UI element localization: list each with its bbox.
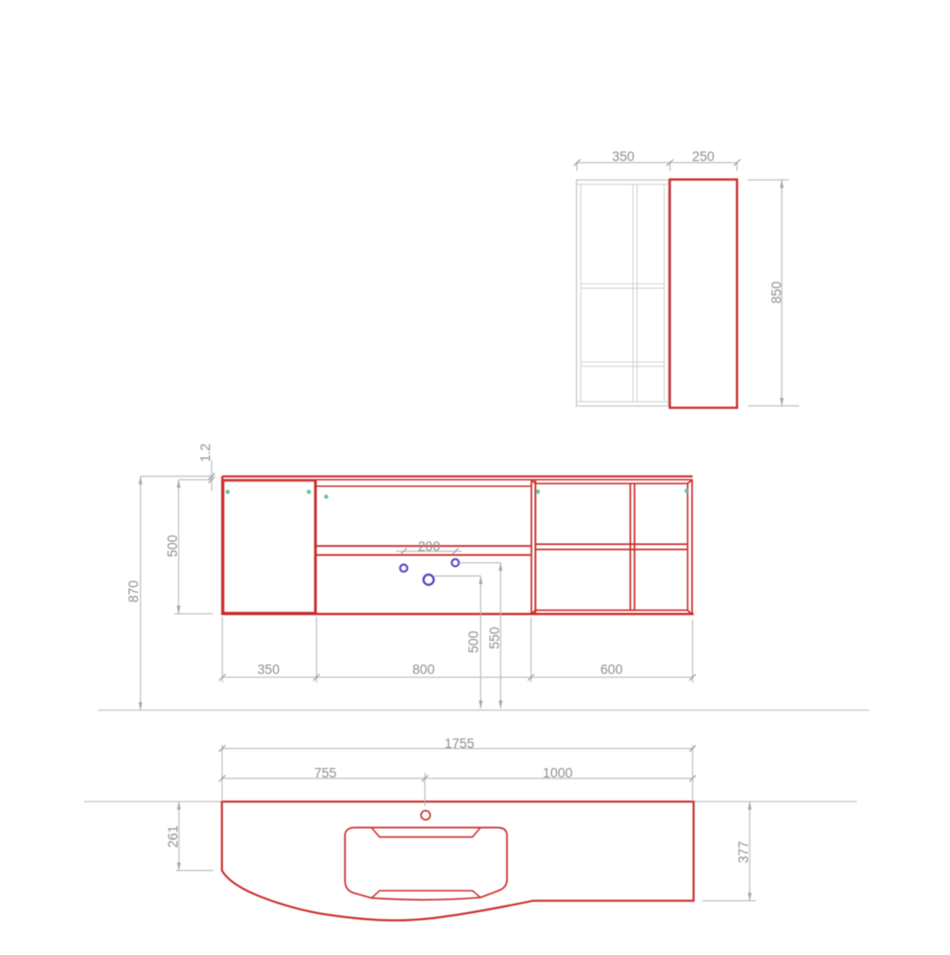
svg-text:1755: 1755 (445, 736, 475, 751)
svg-text:600: 600 (600, 662, 622, 677)
svg-text:250: 250 (692, 149, 714, 164)
svg-text:377: 377 (736, 841, 751, 863)
svg-text:1.2: 1.2 (198, 443, 213, 462)
svg-text:1000: 1000 (543, 765, 573, 780)
svg-text:350: 350 (257, 662, 279, 677)
svg-text:800: 800 (412, 662, 434, 677)
svg-text:500: 500 (165, 535, 180, 557)
svg-text:261: 261 (165, 825, 180, 847)
svg-text:870: 870 (126, 580, 141, 602)
svg-text:755: 755 (314, 765, 336, 780)
svg-text:500: 500 (466, 631, 481, 653)
svg-text:200: 200 (418, 539, 440, 554)
svg-text:550: 550 (487, 627, 502, 649)
svg-text:850: 850 (769, 281, 784, 303)
svg-text:350: 350 (612, 149, 634, 164)
